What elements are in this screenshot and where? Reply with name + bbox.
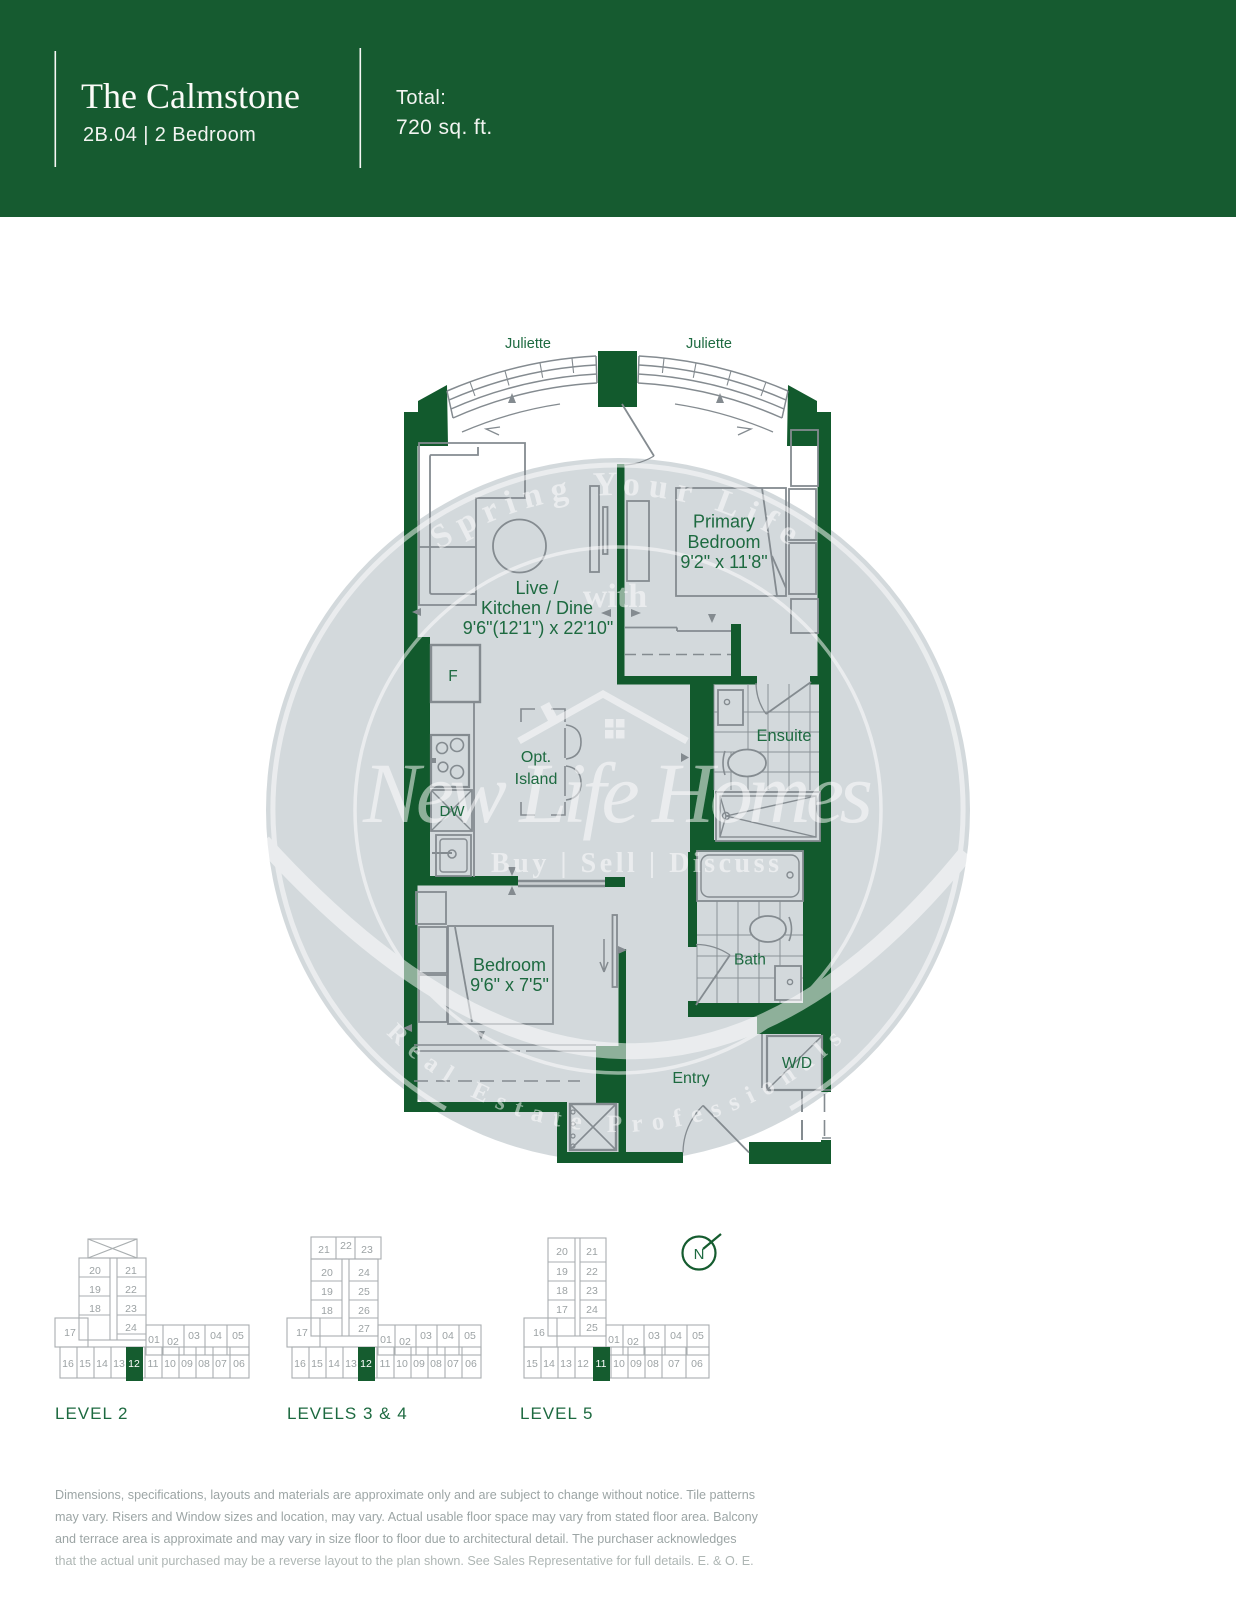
svg-text:22: 22 — [125, 1284, 137, 1296]
svg-text:23: 23 — [586, 1285, 598, 1297]
svg-text:2B.04 | 2 Bedroom: 2B.04 | 2 Bedroom — [83, 124, 256, 146]
svg-text:20: 20 — [321, 1267, 333, 1279]
svg-text:01: 01 — [608, 1334, 620, 1346]
svg-text:17: 17 — [296, 1327, 308, 1339]
svg-text:19: 19 — [556, 1266, 568, 1278]
svg-text:16: 16 — [62, 1358, 74, 1370]
svg-text:Dimensions, specifications, la: Dimensions, specifications, layouts and … — [55, 1488, 755, 1502]
svg-text:F: F — [448, 668, 457, 685]
svg-text:Bedroom: Bedroom — [687, 532, 760, 552]
svg-text:21: 21 — [125, 1265, 137, 1277]
svg-text:14: 14 — [96, 1358, 108, 1370]
svg-text:N: N — [694, 1246, 705, 1263]
svg-text:17: 17 — [64, 1327, 76, 1339]
svg-text:16: 16 — [533, 1327, 545, 1339]
svg-text:24: 24 — [358, 1267, 370, 1279]
svg-text:03: 03 — [648, 1330, 660, 1342]
svg-text:03: 03 — [420, 1330, 432, 1342]
svg-text:04: 04 — [442, 1330, 454, 1342]
svg-text:9'6" x 7'5": 9'6" x 7'5" — [470, 975, 549, 995]
svg-text:07: 07 — [668, 1358, 680, 1370]
svg-text:01: 01 — [148, 1334, 160, 1346]
svg-text:10: 10 — [396, 1358, 408, 1370]
svg-text:13: 13 — [560, 1358, 572, 1370]
svg-text:9'2" x 11'8": 9'2" x 11'8" — [680, 552, 767, 572]
svg-text:LEVEL 2: LEVEL 2 — [55, 1404, 128, 1423]
svg-text:and terrace area is approximat: and terrace area is approximate and may … — [55, 1532, 737, 1546]
svg-text:20: 20 — [556, 1246, 568, 1258]
svg-text:Ensuite: Ensuite — [756, 727, 811, 745]
svg-text:LEVEL 5: LEVEL 5 — [520, 1404, 593, 1423]
svg-text:02: 02 — [167, 1336, 179, 1348]
svg-text:22: 22 — [586, 1266, 598, 1278]
svg-text:17: 17 — [556, 1304, 568, 1316]
svg-text:21: 21 — [586, 1246, 598, 1258]
svg-text:26: 26 — [358, 1305, 370, 1317]
svg-text:22: 22 — [340, 1240, 352, 1252]
svg-text:9'6"(12'1") x 22'10": 9'6"(12'1") x 22'10" — [463, 618, 614, 638]
svg-text:14: 14 — [543, 1358, 555, 1370]
svg-text:DW: DW — [440, 803, 466, 820]
svg-text:04: 04 — [210, 1330, 222, 1342]
svg-text:25: 25 — [358, 1286, 370, 1298]
svg-text:that the actual unit purchased: that the actual unit purchased may be a … — [55, 1554, 754, 1568]
svg-text:24: 24 — [586, 1304, 598, 1316]
svg-text:11: 11 — [380, 1358, 391, 1370]
svg-text:08: 08 — [430, 1358, 442, 1370]
svg-text:12: 12 — [577, 1358, 589, 1370]
svg-text:03: 03 — [188, 1330, 200, 1342]
svg-text:W/D: W/D — [782, 1055, 812, 1072]
svg-text:Buy | Sell | Discuss: Buy | Sell | Discuss — [491, 848, 783, 879]
svg-text:12: 12 — [360, 1358, 372, 1370]
svg-text:New Life Homes: New Life Homes — [362, 745, 873, 841]
svg-text:18: 18 — [321, 1305, 333, 1317]
svg-text:may vary. Risers and Window si: may vary. Risers and Window sizes and lo… — [55, 1510, 759, 1524]
svg-text:Kitchen / Dine: Kitchen / Dine — [481, 598, 593, 618]
svg-text:Total:: Total: — [396, 87, 446, 109]
svg-text:23: 23 — [361, 1244, 373, 1256]
svg-text:Bath: Bath — [734, 952, 766, 969]
svg-text:Juliette: Juliette — [686, 336, 732, 352]
svg-text:06: 06 — [691, 1358, 703, 1370]
svg-text:11: 11 — [596, 1358, 607, 1370]
svg-text:11: 11 — [148, 1358, 159, 1370]
svg-text:10: 10 — [164, 1358, 176, 1370]
svg-text:Entry: Entry — [672, 1070, 709, 1087]
svg-text:Island: Island — [515, 771, 558, 788]
svg-text:Juliette: Juliette — [505, 336, 551, 352]
svg-text:09: 09 — [413, 1358, 425, 1370]
svg-text:Primary: Primary — [693, 512, 755, 532]
svg-text:Live /: Live / — [515, 578, 558, 598]
svg-text:02: 02 — [627, 1336, 639, 1348]
svg-text:05: 05 — [692, 1330, 704, 1342]
svg-text:27: 27 — [358, 1323, 370, 1335]
svg-text:24: 24 — [125, 1322, 137, 1334]
svg-text:13: 13 — [345, 1358, 357, 1370]
svg-text:The Calmstone: The Calmstone — [81, 76, 300, 116]
svg-text:15: 15 — [311, 1358, 323, 1370]
svg-text:04: 04 — [670, 1330, 682, 1342]
svg-text:15: 15 — [79, 1358, 91, 1370]
svg-text:LEVELS 3 & 4: LEVELS 3 & 4 — [287, 1404, 408, 1423]
svg-text:07: 07 — [215, 1358, 227, 1370]
svg-text:06: 06 — [465, 1358, 477, 1370]
svg-text:08: 08 — [198, 1358, 210, 1370]
svg-text:16: 16 — [294, 1358, 306, 1370]
svg-text:13: 13 — [113, 1358, 125, 1370]
svg-text:18: 18 — [89, 1303, 101, 1315]
svg-text:720 sq. ft.: 720 sq. ft. — [396, 116, 493, 139]
svg-text:19: 19 — [321, 1286, 333, 1298]
svg-text:07: 07 — [447, 1358, 459, 1370]
svg-text:20: 20 — [89, 1265, 101, 1277]
svg-text:02: 02 — [399, 1336, 411, 1348]
svg-text:19: 19 — [89, 1284, 101, 1296]
svg-text:08: 08 — [647, 1358, 659, 1370]
svg-text:14: 14 — [328, 1358, 340, 1370]
svg-text:09: 09 — [181, 1358, 193, 1370]
svg-text:05: 05 — [232, 1330, 244, 1342]
svg-text:12: 12 — [128, 1358, 140, 1370]
svg-text:Bedroom: Bedroom — [473, 955, 546, 975]
svg-text:15: 15 — [526, 1358, 538, 1370]
svg-text:09: 09 — [630, 1358, 642, 1370]
svg-text:23: 23 — [125, 1303, 137, 1315]
svg-text:18: 18 — [556, 1285, 568, 1297]
svg-text:06: 06 — [233, 1358, 245, 1370]
svg-text:10: 10 — [613, 1358, 625, 1370]
svg-text:21: 21 — [318, 1244, 330, 1256]
svg-text:Opt.: Opt. — [521, 749, 551, 766]
svg-text:05: 05 — [464, 1330, 476, 1342]
svg-text:01: 01 — [380, 1334, 392, 1346]
svg-text:25: 25 — [586, 1322, 598, 1334]
